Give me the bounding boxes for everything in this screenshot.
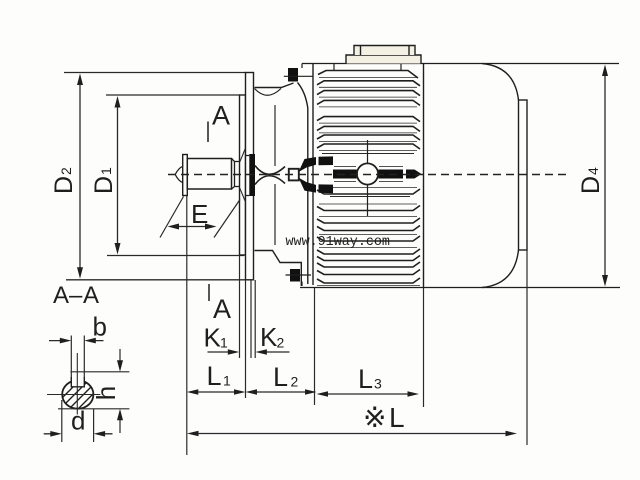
svg-text:L: L <box>273 362 288 392</box>
svg-text:L: L <box>358 364 373 394</box>
svg-text:www.91way.com: www.91way.com <box>286 235 390 250</box>
svg-text:1: 1 <box>223 373 231 389</box>
svg-text:A: A <box>212 101 230 131</box>
svg-text:1: 1 <box>220 335 228 351</box>
svg-text:h: h <box>91 386 121 400</box>
svg-text:A: A <box>53 282 69 309</box>
svg-text:K: K <box>204 323 222 353</box>
svg-text:D: D <box>50 176 78 194</box>
svg-text:L: L <box>207 361 222 391</box>
svg-text:A: A <box>213 294 231 324</box>
svg-text:D: D <box>90 176 118 194</box>
svg-text:D: D <box>577 176 605 194</box>
svg-text:–: – <box>69 282 83 309</box>
svg-text:1: 1 <box>98 167 114 175</box>
svg-text:2: 2 <box>277 335 285 351</box>
svg-text:3: 3 <box>374 376 382 392</box>
svg-text:L: L <box>389 402 405 433</box>
svg-text:2: 2 <box>58 167 74 175</box>
svg-text:E: E <box>191 199 208 229</box>
svg-text:※: ※ <box>363 402 386 433</box>
svg-text:2: 2 <box>291 374 299 390</box>
svg-text:b: b <box>93 312 107 342</box>
svg-text:4: 4 <box>585 167 601 175</box>
svg-text:d: d <box>71 406 85 436</box>
svg-text:K: K <box>260 322 278 352</box>
svg-text:A: A <box>83 282 99 309</box>
